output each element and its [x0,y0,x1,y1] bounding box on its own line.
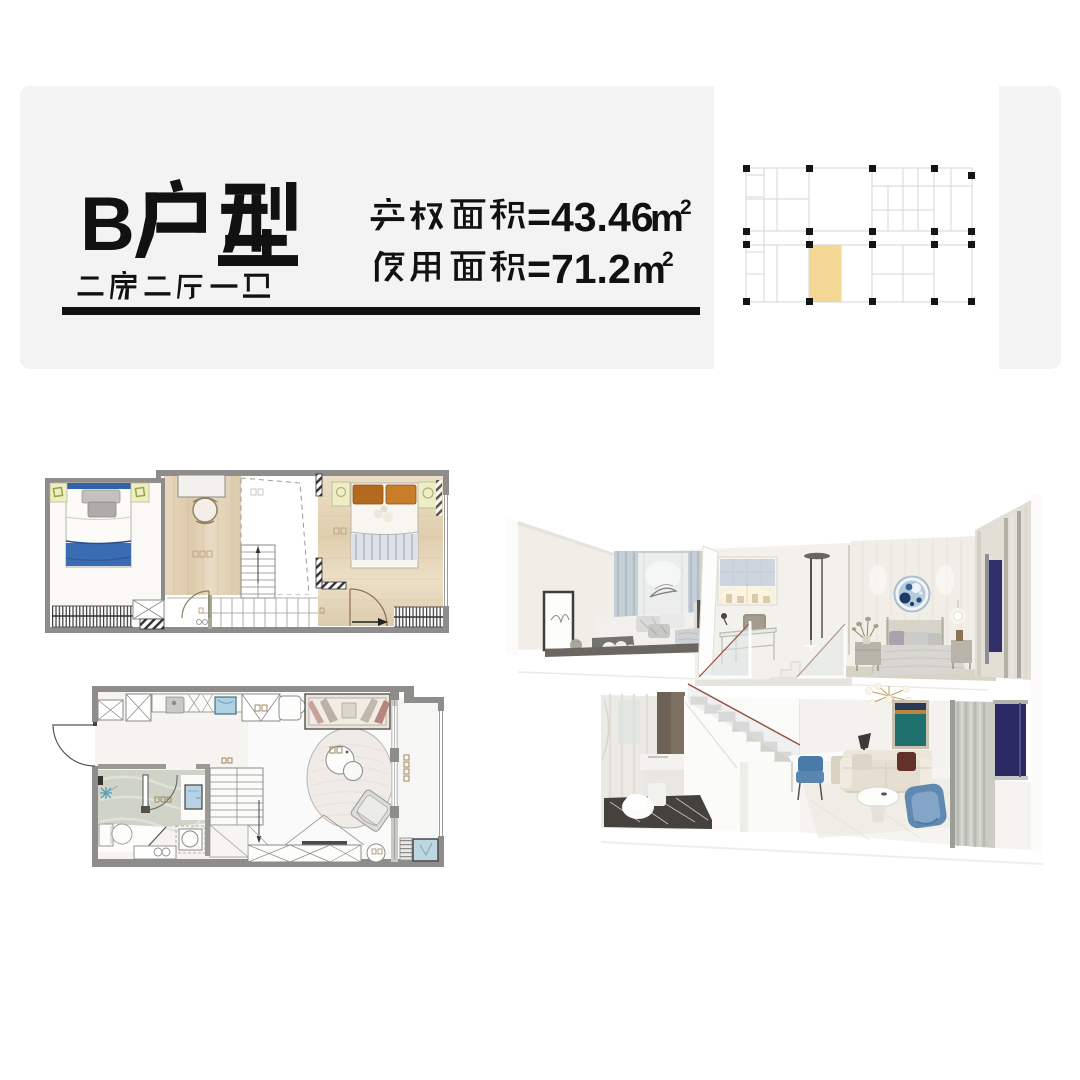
svg-text:B: B [80,182,135,267]
svg-text:=43.46: =43.46 [527,194,654,240]
svg-text:2: 2 [680,196,692,219]
svg-text:m: m [650,198,684,240]
svg-text:m: m [632,250,666,292]
svg-text:2: 2 [662,248,674,271]
svg-text:=71.2: =71.2 [527,246,631,292]
